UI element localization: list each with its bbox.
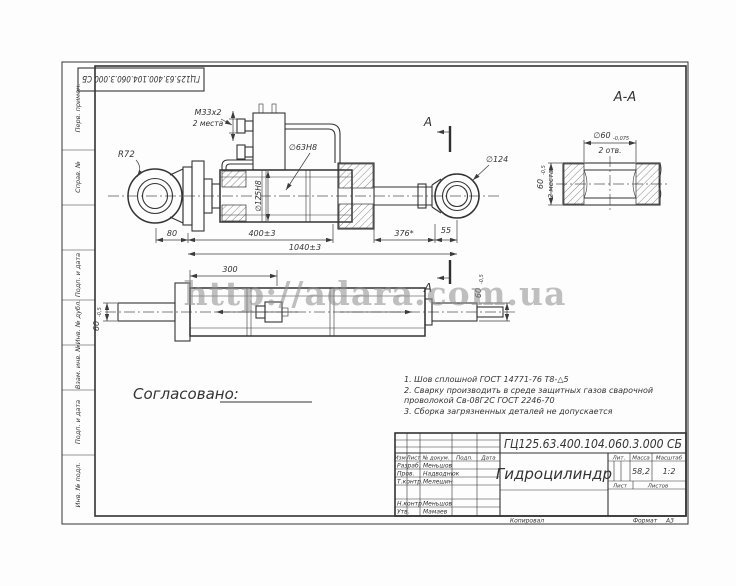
copied-label: Копировал bbox=[510, 518, 544, 525]
header-massa: Масса bbox=[632, 456, 650, 462]
row-name-utv: Мамаев bbox=[423, 509, 448, 516]
w60-count: 2 места bbox=[547, 170, 555, 198]
d60-hole-tolerance: -0,075 bbox=[613, 136, 629, 142]
margin-label-podp-data-1: Подп. и дата bbox=[74, 253, 82, 297]
margin-label-perv-primen: Перв. примен. bbox=[74, 84, 82, 133]
w60-label: 60 bbox=[536, 179, 545, 189]
row-name-tkontr: Мелешин bbox=[423, 479, 453, 486]
dim-300: 300 bbox=[222, 265, 237, 274]
row-name-nkontr: Меньшов bbox=[423, 501, 452, 508]
mass-value: 58,2 bbox=[632, 467, 650, 476]
main-view-linework bbox=[108, 104, 502, 231]
dim-55: 55 bbox=[441, 226, 451, 235]
header-list: Лист bbox=[406, 456, 422, 462]
approval-label: Согласовано: bbox=[133, 385, 239, 403]
approval: Согласовано: bbox=[133, 385, 312, 403]
format-value: А3 bbox=[665, 518, 674, 525]
technical-notes: 1. Шов сплошной ГОСТ 14771-76 Т8-△5 2. С… bbox=[404, 375, 653, 416]
dim-376: 376* bbox=[394, 229, 413, 238]
m33-label: М33х2 bbox=[195, 108, 222, 117]
margin-label-inv-dubl: Инв. № дубл. bbox=[74, 300, 82, 344]
note-line-3: проволокой Св-08Г2С ГОСТ 2246-70 bbox=[404, 396, 555, 405]
d125-label: ∅125Н8 bbox=[254, 180, 263, 211]
dim-60-left: 60 bbox=[92, 321, 101, 331]
dim-400: 400±3 bbox=[248, 229, 275, 238]
row-role-utv: Утв. bbox=[397, 509, 410, 516]
row-name-razrab: Меньшов bbox=[423, 463, 452, 470]
note-line-2: 2. Сварку производить в среде защитных г… bbox=[404, 386, 653, 395]
main-view-dimensions: М33х2 2 места R72 ∅63Н8 ∅125Н8 80 400±3 … bbox=[118, 108, 508, 295]
header-sheet: Лист bbox=[612, 484, 628, 490]
product-name: Гидроцилиндр bbox=[496, 465, 612, 483]
title-block: Изм. Лист № докум. Подп. Дата Разраб. Ме… bbox=[395, 433, 686, 516]
row-role-prov: Пров. bbox=[397, 471, 415, 478]
d124-label: ∅124 bbox=[486, 155, 508, 164]
dim-1040: 1040±3 bbox=[289, 243, 321, 252]
header-doc: № докум. bbox=[421, 456, 449, 462]
row-name-prov: Надводнюк bbox=[423, 471, 460, 478]
r72-label: R72 bbox=[118, 150, 135, 160]
dim-60-left-tolerance: -0,5 bbox=[97, 307, 103, 317]
format-label: Формат bbox=[633, 518, 658, 525]
row-role-nkontr: Н.контр. bbox=[397, 501, 424, 508]
m33-sub-label: 2 места bbox=[193, 119, 224, 128]
dim-80: 80 bbox=[167, 229, 177, 238]
margin-label-vzam-inv: Взам. инв. № bbox=[74, 345, 82, 389]
title-doc-number: ГЦ125.63.400.104.060.3.000 СБ bbox=[504, 436, 682, 451]
header-masshtab: Масштаб bbox=[656, 456, 683, 462]
note-line-1: 1. Шов сплошной ГОСТ 14771-76 Т8-△5 bbox=[404, 375, 569, 384]
note-line-4: 3. Сборка загрязненных деталей не допуск… bbox=[404, 407, 613, 416]
section-letter-top: А bbox=[423, 115, 432, 129]
drawing-sheet: ГЦ125.63.400.104.060.3.000 СБ Перв. прим… bbox=[0, 0, 736, 586]
site-watermark: http://adara.com.ua bbox=[184, 274, 567, 313]
row-role-razrab: Разраб. bbox=[397, 463, 421, 470]
bottom-margin: Копировал Формат А3 bbox=[510, 518, 674, 525]
d60-hole-label: ∅60 bbox=[593, 131, 610, 140]
section-view: А-А ∅60 -0,075 2 отв. 60 -0,5 2 места bbox=[536, 90, 670, 212]
header-sheets: Листов bbox=[647, 484, 669, 490]
doc-number-rotated: ГЦ125.63.400.104.060.3.000 СБ bbox=[82, 73, 200, 83]
section-title: А-А bbox=[613, 90, 636, 105]
engineering-drawing: ГЦ125.63.400.104.060.3.000 СБ Перв. прим… bbox=[0, 0, 736, 586]
d63-label: ∅63Н8 bbox=[289, 143, 317, 152]
margin-label-podp-data-2: Подп. и дата bbox=[74, 400, 82, 444]
header-data: Дата bbox=[480, 456, 496, 462]
header-podp: Подп. bbox=[456, 456, 473, 462]
margin-label-sprav-no: Справ. № bbox=[74, 161, 82, 193]
margin-label-inv-podl: Инв. № подл. bbox=[74, 463, 82, 508]
header-lit: Лит. bbox=[612, 456, 626, 462]
d60-hole-count: 2 отв. bbox=[599, 146, 622, 155]
scale-value: 1:2 bbox=[663, 467, 676, 476]
row-role-tkontr: Т.контр. bbox=[397, 479, 423, 486]
